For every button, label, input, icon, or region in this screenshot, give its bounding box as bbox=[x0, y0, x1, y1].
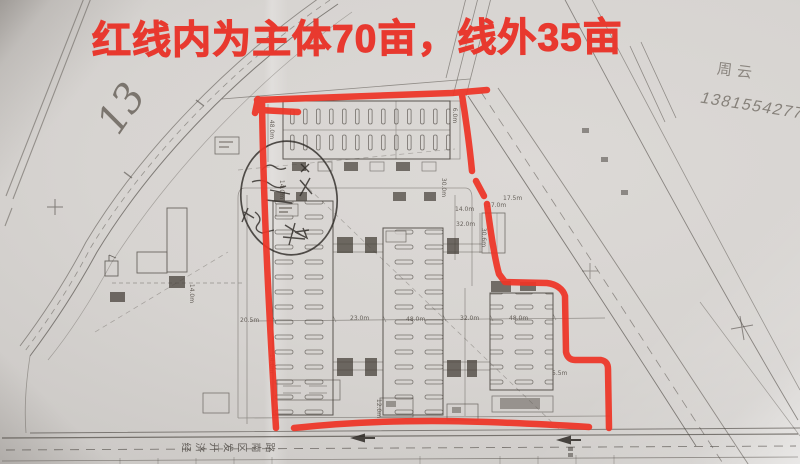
handwritten-phone: 13815542777 bbox=[697, 90, 800, 125]
dimension-label: 32.0m bbox=[456, 221, 475, 228]
building-4 bbox=[490, 281, 553, 412]
south-road-name-char: 开 bbox=[208, 443, 223, 453]
paper-edge-lines bbox=[5, 0, 91, 226]
dimension-label: 14.0m bbox=[188, 284, 195, 303]
utility-square bbox=[215, 137, 239, 154]
dimension-label: 6.0m bbox=[451, 108, 458, 123]
dimension-label: 23.0m bbox=[350, 315, 369, 322]
south-road-name-char: 发 bbox=[222, 443, 237, 453]
south-road-name-char: 路 bbox=[264, 443, 279, 453]
parcel-north-boundary bbox=[222, 79, 470, 99]
dimension-label: 48.0m bbox=[406, 316, 425, 323]
internal-roads bbox=[112, 188, 610, 424]
red-title-text: 红线内为主体70亩，线外35亩 bbox=[92, 6, 623, 66]
dimension-label: 14.0m bbox=[278, 180, 285, 199]
red-line-east-dash bbox=[476, 181, 484, 196]
handwritten-name: 周云 bbox=[716, 58, 758, 84]
site-plan-photo: 48.0m14.0m30.0m6.0m14.0m32.0m17.0m17.5m3… bbox=[0, 0, 800, 464]
red-line-west bbox=[262, 100, 276, 428]
site-plan-drawing bbox=[0, 0, 800, 464]
road-label-smudges bbox=[568, 128, 628, 457]
dimension-label: 14.0m bbox=[268, 354, 275, 373]
dimension-lines bbox=[250, 104, 605, 323]
corridor-blocks bbox=[110, 237, 477, 377]
south-road-name-char: 济 bbox=[194, 443, 209, 453]
red-line-east-upper bbox=[462, 95, 472, 171]
south-road-name-char: 区 bbox=[236, 443, 251, 453]
red-line-east-stepped bbox=[487, 204, 609, 428]
survey-crosses bbox=[47, 199, 753, 340]
red-line-hook bbox=[255, 99, 258, 113]
building-3 bbox=[383, 192, 443, 415]
pen-scribbles bbox=[242, 164, 312, 245]
dimension-label: 48.0m bbox=[509, 315, 528, 322]
dimension-label: 5.5m bbox=[552, 370, 567, 377]
dimension-label: 17.0m bbox=[487, 202, 506, 209]
red-boundary-annotation bbox=[0, 0, 800, 464]
pen-circle-annotation bbox=[234, 135, 345, 261]
red-line-north bbox=[257, 90, 487, 100]
red-line-inner-dash bbox=[259, 110, 298, 112]
dimension-label: 30.6m bbox=[480, 228, 487, 247]
west-l-building bbox=[105, 208, 187, 276]
corridor-lines bbox=[333, 244, 490, 370]
building-top-shed bbox=[283, 101, 460, 159]
dimension-label: 32.0m bbox=[460, 315, 479, 322]
south-road-name-char: 南 bbox=[250, 443, 265, 453]
road-direction-arrows bbox=[350, 434, 581, 445]
south-aux-buildings bbox=[203, 380, 478, 420]
handwritten-page-number: 13 bbox=[90, 72, 152, 147]
south-road bbox=[2, 428, 800, 464]
dimension-label: 30.0m bbox=[440, 178, 447, 197]
dimension-label: 17.5m bbox=[503, 195, 522, 202]
dimension-label: 20.5m bbox=[240, 317, 259, 324]
dock-blocks-row bbox=[292, 162, 436, 171]
red-line-south bbox=[294, 421, 589, 428]
dimension-label: 14.0m bbox=[455, 206, 474, 213]
dimension-label: 12.0m bbox=[375, 399, 382, 418]
dimension-label: 48.0m bbox=[268, 120, 275, 139]
survey-lines bbox=[95, 149, 560, 430]
building-2 bbox=[273, 192, 333, 415]
south-road-name-char: 经 bbox=[180, 443, 195, 453]
